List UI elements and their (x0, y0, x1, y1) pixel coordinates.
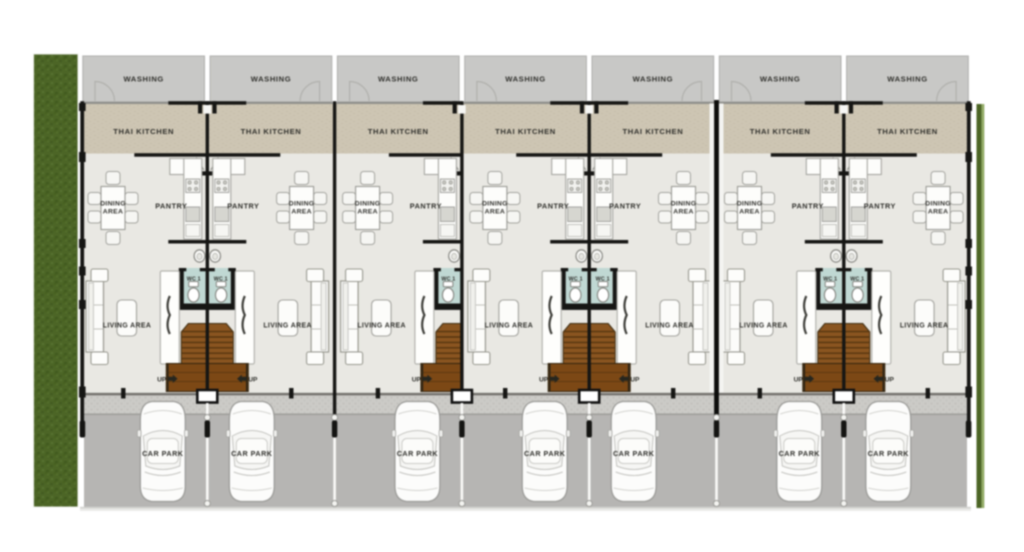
svg-text:DINING: DINING (671, 201, 697, 208)
svg-text:AREA: AREA (739, 209, 759, 216)
svg-text:THAI KITCHEN: THAI KITCHEN (113, 127, 174, 136)
svg-text:THAI KITCHEN: THAI KITCHEN (368, 127, 429, 136)
svg-text:CAR PARK: CAR PARK (779, 449, 821, 458)
svg-text:CAR PARK: CAR PARK (613, 449, 655, 458)
svg-text:CAR PARK: CAR PARK (397, 449, 439, 458)
svg-text:LIVING AREA: LIVING AREA (103, 323, 152, 330)
svg-text:PANTRY: PANTRY (537, 202, 569, 211)
svg-text:WASHING: WASHING (760, 75, 800, 84)
svg-text:CAR PARK: CAR PARK (142, 449, 184, 458)
svg-text:WASHING: WASHING (123, 75, 163, 84)
svg-text:LIVING AREA: LIVING AREA (645, 323, 694, 330)
svg-text:WASHING: WASHING (633, 75, 673, 84)
svg-text:WC 1: WC 1 (823, 277, 837, 283)
svg-text:UP: UP (885, 377, 895, 384)
svg-text:AREA: AREA (928, 209, 948, 216)
svg-text:UP: UP (630, 377, 640, 384)
svg-text:PANTRY: PANTRY (792, 202, 824, 211)
svg-text:WC 1: WC 1 (596, 277, 610, 283)
svg-text:UP: UP (248, 377, 258, 384)
svg-text:WC 1: WC 1 (569, 277, 583, 283)
svg-text:THAI KITCHEN: THAI KITCHEN (495, 127, 556, 136)
svg-text:UP: UP (539, 377, 549, 384)
svg-text:CAR PARK: CAR PARK (868, 449, 910, 458)
svg-text:AREA: AREA (291, 209, 311, 216)
svg-text:WASHING: WASHING (378, 75, 418, 84)
svg-text:WASHING: WASHING (887, 75, 927, 84)
svg-text:THAI KITCHEN: THAI KITCHEN (750, 127, 811, 136)
svg-text:AREA: AREA (485, 209, 505, 216)
svg-text:DINING: DINING (925, 201, 951, 208)
svg-text:CAR PARK: CAR PARK (524, 449, 566, 458)
svg-text:PANTRY: PANTRY (410, 202, 442, 211)
svg-text:WC 1: WC 1 (441, 277, 455, 283)
svg-text:AREA: AREA (673, 209, 693, 216)
svg-text:LIVING AREA: LIVING AREA (357, 323, 406, 330)
svg-text:AREA: AREA (103, 209, 123, 216)
svg-text:PANTRY: PANTRY (609, 202, 641, 211)
svg-text:WC 1: WC 1 (214, 277, 228, 283)
svg-text:DINING: DINING (289, 201, 315, 208)
svg-text:PANTRY: PANTRY (864, 202, 896, 211)
svg-text:LIVING AREA: LIVING AREA (900, 323, 949, 330)
svg-text:UP: UP (157, 377, 167, 384)
svg-text:UP: UP (412, 377, 422, 384)
svg-text:AREA: AREA (357, 209, 377, 216)
svg-text:UP: UP (794, 377, 804, 384)
svg-text:WASHING: WASHING (251, 75, 291, 84)
svg-text:DINING: DINING (100, 201, 126, 208)
svg-text:CAR PARK: CAR PARK (231, 449, 273, 458)
svg-text:DINING: DINING (355, 201, 381, 208)
svg-text:THAI KITCHEN: THAI KITCHEN (623, 127, 684, 136)
svg-text:LIVING AREA: LIVING AREA (485, 323, 534, 330)
svg-text:DINING: DINING (737, 201, 763, 208)
svg-text:THAI KITCHEN: THAI KITCHEN (241, 127, 302, 136)
svg-text:PANTRY: PANTRY (227, 202, 259, 211)
svg-text:PANTRY: PANTRY (155, 202, 187, 211)
svg-text:DINING: DINING (482, 201, 508, 208)
svg-text:LIVING AREA: LIVING AREA (739, 323, 788, 330)
svg-text:WASHING: WASHING (505, 75, 545, 84)
svg-text:LIVING AREA: LIVING AREA (263, 323, 312, 330)
svg-text:WC 1: WC 1 (187, 277, 201, 283)
svg-text:WC 1: WC 1 (850, 277, 864, 283)
svg-text:THAI KITCHEN: THAI KITCHEN (877, 127, 938, 136)
